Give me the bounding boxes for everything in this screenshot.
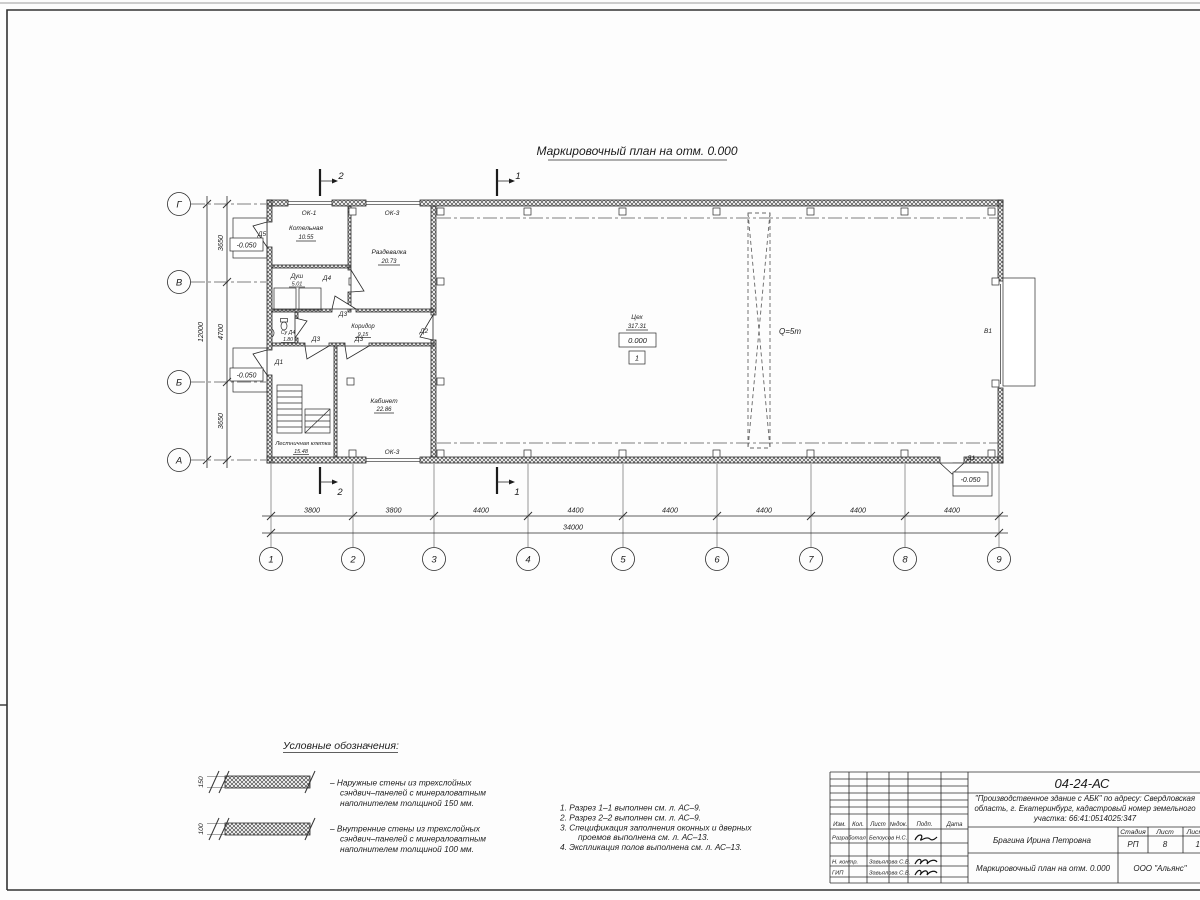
dim-g-v: 3650 <box>216 235 225 251</box>
window-ok1-label: ОК-1 <box>302 210 317 217</box>
tb-stage-header: Стадия <box>1120 828 1146 836</box>
room-tseh-area: 317.31 <box>628 324 646 330</box>
note-1: 1. Разрез 1–1 выполнен см. л. АС–9. <box>560 803 701 813</box>
dim-6-7: 4400 <box>756 506 772 515</box>
tb-col-data: Дата <box>946 822 963 828</box>
door-d1-left-label: Д1 <box>274 359 284 366</box>
axis-row-v: В <box>176 278 183 289</box>
drawing-sheet: Маркировочный план на отм. 0.000 <box>0 0 1200 900</box>
room-kotelnaya-area: 10.55 <box>298 235 314 241</box>
axis-col-5: 5 <box>620 555 626 566</box>
door-d4-label: Д4 <box>322 275 332 282</box>
section-2-label-bottom: 2 <box>336 487 343 498</box>
tb-list-value: 8 <box>1163 840 1168 849</box>
tb-col-kol: Кол. <box>852 822 864 828</box>
room-dush-name: Душ <box>290 274 303 280</box>
plan-title: Маркировочный план на отм. 0.000 <box>536 144 737 160</box>
section-1-label-bottom: 1 <box>514 487 519 498</box>
room-koridor-name: Коридор <box>351 324 375 330</box>
door-d1-right-label: Д1 <box>966 455 976 462</box>
crane-capacity-label: Q=5т <box>779 327 801 336</box>
room-lestnitsa-area: 15.48 <box>294 449 309 455</box>
tb-listov-value: 13 <box>1196 840 1200 849</box>
legend-dim-100: 100 <box>198 823 205 835</box>
room-lestnitsa-name: Лестничная клетка <box>274 441 331 447</box>
legend-title: Условные обозначения: <box>282 740 399 752</box>
project-line3: участка: 66:41:0514025:347 <box>1033 814 1137 823</box>
door-d3-label: Д3 <box>338 311 348 318</box>
tb-name-belousov: Белоусов Н.С. <box>869 836 907 842</box>
axis-col-7: 7 <box>808 555 814 566</box>
dim-total-h: 34000 <box>563 523 583 532</box>
legend-item2-line1: – Внутренние стены из трехслойных <box>329 824 481 834</box>
door-d3-label: Д3 <box>354 336 364 343</box>
tb-list-header: Лист <box>1155 829 1174 836</box>
room-razdevalka-area: 20.73 <box>380 259 397 265</box>
axis-col-1: 1 <box>268 555 273 566</box>
dim-1-2: 3800 <box>304 506 320 515</box>
elevation-zero: 0.000 <box>628 336 648 345</box>
tb-name-zavyalova2: Завьялова С.В. <box>869 871 910 877</box>
floor-plan-svg: Маркировочный план на отм. 0.000 <box>0 0 1200 900</box>
tb-col-list: Лист <box>869 822 885 828</box>
section-1-label-top: 1 <box>515 171 520 182</box>
plan-title-text: Маркировочный план на отм. 0.000 <box>536 144 737 158</box>
dim-5-6: 4400 <box>662 506 678 515</box>
door-d5-label: Д5 <box>257 231 267 238</box>
elevation-minus-right: -0.050 <box>961 477 981 484</box>
legend-dim-150: 150 <box>198 776 205 788</box>
tb-role-razrabotal: Разработал <box>832 836 867 842</box>
axis-col-9: 9 <box>996 555 1002 566</box>
dim-b-a: 3650 <box>216 413 225 429</box>
axis-col-2: 2 <box>349 555 356 566</box>
axis-col-4: 4 <box>525 555 530 566</box>
floor-type-mark: 1 <box>635 354 639 363</box>
tb-stage-value: РП <box>1127 840 1138 849</box>
axis-col-3: 3 <box>431 555 437 566</box>
dim-4-5: 4400 <box>568 506 584 515</box>
note-3b: проемов выполнена см. л. АС–13. <box>578 832 709 842</box>
legend-item1-line2: сэндвич–панелей с минераловатным <box>340 788 486 798</box>
tb-listov-header: Листов <box>1186 829 1200 836</box>
legend-item2-line3: наполнителем толщиной 100 мм. <box>340 844 474 854</box>
note-2: 2. Разрез 2–2 выполнен см. л. АС–9. <box>559 813 701 823</box>
elevation-minus-middle: -0.050 <box>237 373 257 380</box>
axis-row-b: Б <box>176 378 182 389</box>
room-tseh-name: Цех <box>631 314 643 321</box>
dim-v-b: 4700 <box>216 324 225 340</box>
tb-col-podp: Подп. <box>917 822 933 828</box>
tb-author: Брагина Ирина Петровна <box>993 836 1091 845</box>
door-d2-label: Д2 <box>419 328 429 335</box>
axis-row-a: А <box>175 456 182 467</box>
sheet-background <box>0 0 1200 900</box>
window-ok3-bottom-label: ОК-3 <box>385 449 400 456</box>
dim-8-9: 4400 <box>944 506 960 515</box>
document-code: 04-24-АС <box>1055 776 1111 791</box>
legend-item1-line3: наполнителем толщиной 150 мм. <box>340 798 474 808</box>
room-kabinet-name: Кабинет <box>370 397 398 405</box>
dim-3-4: 4400 <box>473 506 489 515</box>
room-dush-area: 5.01 <box>292 282 303 288</box>
elevation-minus-top: -0.050 <box>237 243 257 250</box>
room-kotelnaya-name: Котельная <box>289 225 324 232</box>
legend-item2-line2: сэндвич–панелей с минераловатным <box>340 834 486 844</box>
gate-v1-label: В1 <box>984 328 992 335</box>
tb-role-nkontr: Н. контр. <box>832 860 858 866</box>
dim-2-3: 3800 <box>386 506 402 515</box>
room-razdevalka-name: Раздевалка <box>371 248 406 256</box>
dim-total-v: 12000 <box>196 322 205 342</box>
room-kabinet-area: 22.86 <box>375 407 392 413</box>
room-su-area: 1.80 <box>283 337 293 343</box>
tb-role-gip: ГИП <box>832 871 844 877</box>
room-su-name: Су Д4 <box>281 330 295 336</box>
project-line1: "Производственное здание с АБК" по адрес… <box>975 794 1196 803</box>
note-3: 3. Спецификация заполнения оконных и две… <box>560 823 752 833</box>
note-4: 4. Экспликация полов выполнена см. л. АС… <box>560 842 742 852</box>
tb-company: ООО "Альянс" <box>1133 864 1187 873</box>
axis-col-8: 8 <box>902 555 908 566</box>
section-2-label-top: 2 <box>337 171 344 182</box>
tb-col-izm: Изм. <box>833 822 846 828</box>
axis-col-6: 6 <box>714 555 720 566</box>
tb-sheet-title: Маркировочный план на отм. 0.000 <box>976 864 1111 873</box>
window-ok3-top-label: ОК-3 <box>385 210 400 217</box>
tb-col-ndok: №док. <box>890 821 908 828</box>
axis-row-g: Г <box>176 200 182 211</box>
dim-7-8: 4400 <box>850 506 866 515</box>
door-d3-label: Д3 <box>311 336 321 343</box>
legend-item1-line1: – Наружные стены из трехслойных <box>329 778 472 788</box>
tb-name-zavyalova1: Завьялова С.В. <box>869 860 910 866</box>
project-line2: область, г. Екатеринбург, кадастровый но… <box>974 804 1196 813</box>
